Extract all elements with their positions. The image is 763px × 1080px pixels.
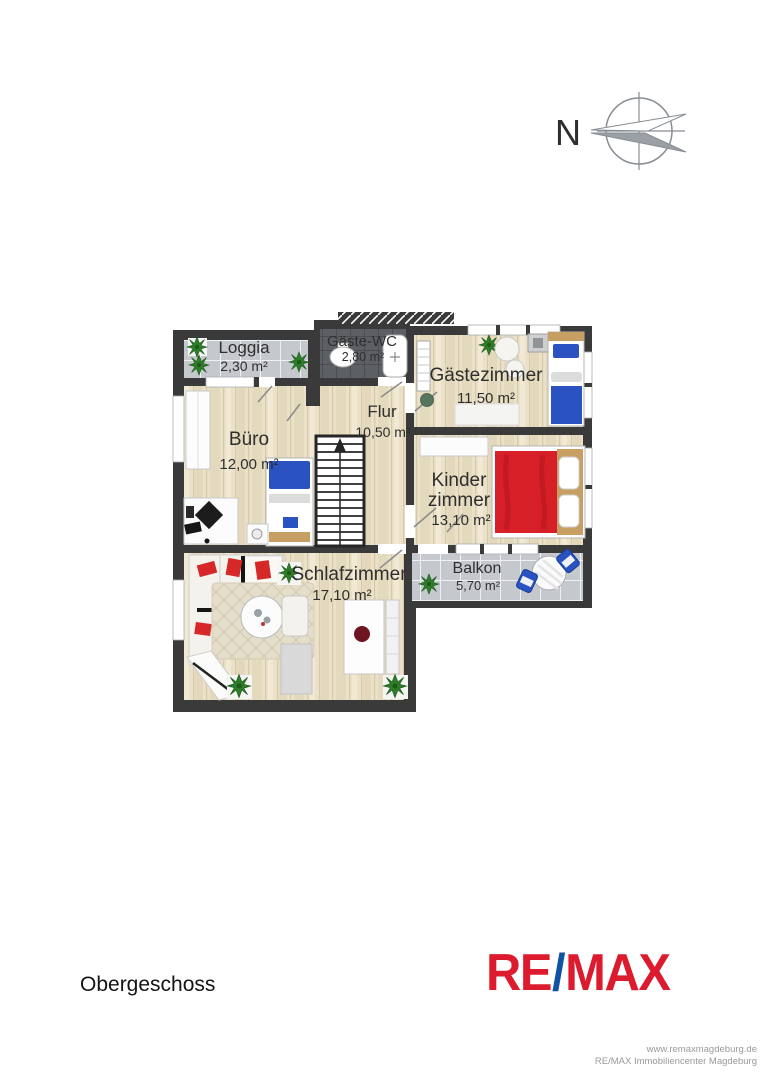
room-area-gaestezimmer: 11,50 m² <box>457 390 515 407</box>
plant-icon <box>228 675 251 698</box>
room-area-loggia: 2,30 m² <box>220 358 268 374</box>
remax-logo: RE/MAX <box>486 951 670 995</box>
plant-icon <box>419 574 439 594</box>
footboard <box>269 532 310 542</box>
table-decor <box>254 609 262 617</box>
tv-board <box>281 644 312 694</box>
compass: N <box>555 92 686 170</box>
rug <box>455 404 519 425</box>
room-area-schlafzimmer: 17,10 m² <box>312 587 371 604</box>
desk-item <box>186 506 194 518</box>
schlafzimmer-door <box>378 544 406 554</box>
balkon-door <box>418 544 448 554</box>
room-area-buero: 12,00 m² <box>219 456 278 473</box>
bin <box>421 394 434 407</box>
pillow <box>559 457 579 489</box>
page: N <box>0 0 763 1080</box>
shelf <box>420 437 488 456</box>
dresser-knob <box>252 529 262 539</box>
room-label-buero: Büro <box>229 429 269 450</box>
single-bed <box>548 332 584 426</box>
plant-icon <box>187 337 207 357</box>
table-decor <box>261 622 265 626</box>
room-label-kinderzimmer-2: zimmer <box>428 490 491 511</box>
chimney-hatch <box>338 312 454 324</box>
gaestezimmer-door <box>405 383 415 413</box>
room-label-gaestezimmer: Gästezimmer <box>430 365 544 386</box>
logo-slash: / <box>551 951 565 995</box>
logo-re: RE <box>486 951 551 995</box>
wall-stub <box>306 378 320 406</box>
footer-website: www.remaxmagdeburg.de <box>595 1044 757 1056</box>
armchair <box>282 596 308 636</box>
room-label-schlafzimmer: Schlafzimmer <box>291 564 407 585</box>
logo-max: MAX <box>565 951 669 995</box>
plant-icon <box>384 675 407 698</box>
blanket <box>551 386 582 424</box>
floor-title: Obergeschoss <box>80 973 215 997</box>
schlafzimmer-window <box>173 580 184 640</box>
kinderzimmer-door <box>405 505 415 538</box>
room-label-balkon: Balkon <box>453 560 502 577</box>
loggia-window <box>206 377 254 387</box>
pillow <box>553 344 579 358</box>
shelf <box>386 600 399 674</box>
headboard <box>548 332 584 341</box>
double-bed <box>492 446 585 538</box>
loggia-door <box>259 377 275 387</box>
bowl <box>354 626 370 642</box>
balkon-window <box>456 544 538 554</box>
desk <box>184 498 238 544</box>
round-table <box>241 596 283 638</box>
room-label-loggia: Loggia <box>218 338 270 357</box>
room-label-gaeste-wc: Gäste-WC <box>327 333 397 350</box>
table-decor <box>264 617 271 624</box>
floorplan-svg: N <box>0 0 763 1080</box>
plant-icon <box>289 352 309 372</box>
buero-window <box>173 396 184 462</box>
room-label-flur: Flur <box>367 402 397 421</box>
footer-company: RE/MAX Immobiliencenter Magdeburg <box>595 1056 757 1068</box>
room-label-kinderzimmer-1: Kinder <box>432 470 488 491</box>
blanket-fold <box>551 372 582 382</box>
cushion <box>283 517 298 528</box>
pouf <box>495 337 519 361</box>
wc-door <box>378 377 406 386</box>
plant-icon <box>189 355 209 375</box>
room-area-kinderzimmer: 13,10 m² <box>431 512 490 529</box>
pillow <box>559 495 579 527</box>
side-table-top <box>533 338 543 348</box>
blanket-fold <box>269 494 310 503</box>
compass-north-label: N <box>555 112 581 153</box>
floor-plan: Loggia 2,30 m² Gäste-WC 2,80 m² Gästezim… <box>173 312 592 712</box>
footer-smallprint: www.remaxmagdeburg.de RE/MAX Immobilienc… <box>595 1044 757 1068</box>
mug <box>205 539 210 544</box>
room-area-balkon: 5,70 m² <box>456 578 501 593</box>
stairs <box>316 436 364 546</box>
room-area-gaeste-wc: 2,80 m² <box>342 350 384 364</box>
room-area-flur: 10,50 m² <box>355 424 411 440</box>
